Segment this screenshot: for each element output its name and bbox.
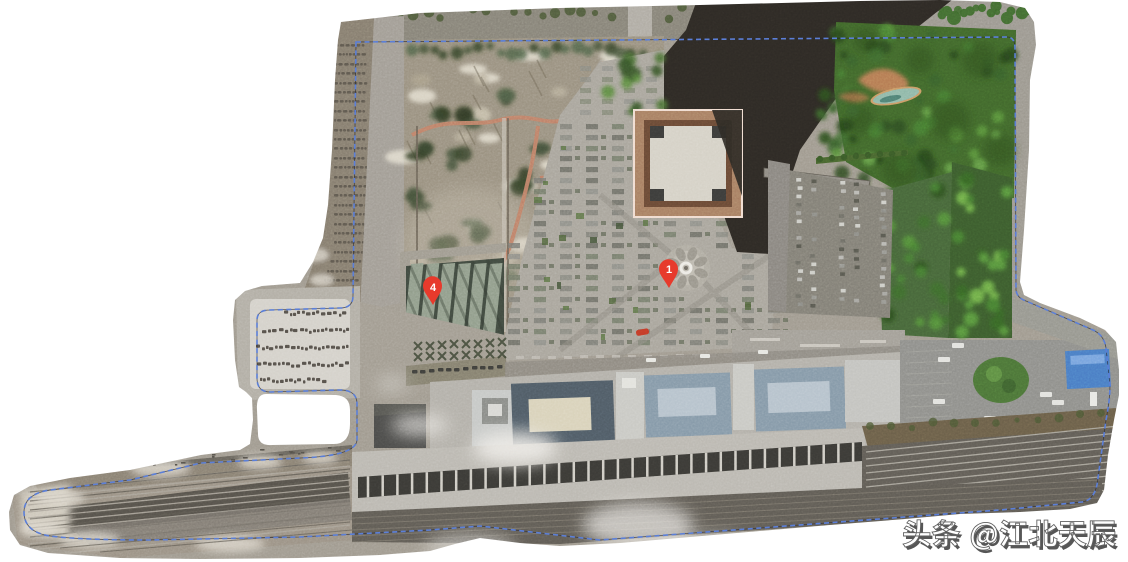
svg-text:1: 1	[666, 264, 672, 276]
svg-text:4: 4	[430, 282, 437, 294]
